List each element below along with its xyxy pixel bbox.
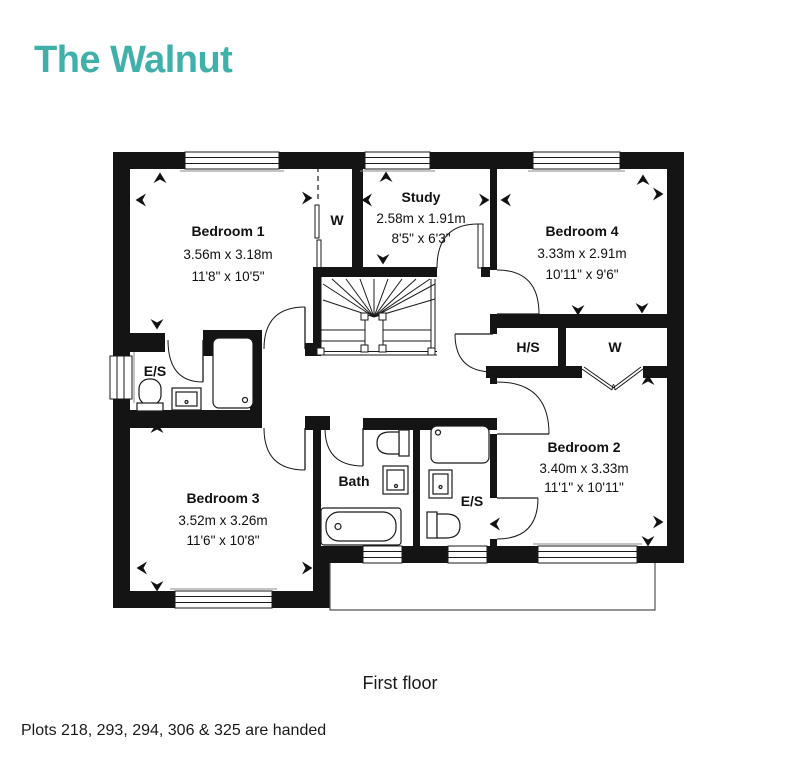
- sink-es1: [172, 388, 201, 410]
- dims-bedroom3-imperial: 11'6" x 10'8": [186, 533, 259, 548]
- dims-bedroom4-metric: 3.33m x 2.91m: [537, 246, 626, 261]
- dims-study-metric: 2.58m x 1.91m: [376, 211, 465, 226]
- sink-es2: [429, 470, 452, 498]
- dims-bedroom2-imperial: 11'1" x 10'11": [544, 480, 624, 495]
- door-es2: [497, 498, 538, 539]
- toilet-es1: [137, 379, 163, 411]
- label-bedroom3: Bedroom 3: [186, 490, 259, 506]
- dims-bedroom1-metric: 3.56m x 3.18m: [183, 247, 272, 262]
- door-bedroom2: [497, 382, 549, 434]
- label-es1: E/S: [144, 363, 167, 379]
- dims-bedroom4-imperial: 10'11" x 9'6": [545, 267, 618, 282]
- window-study: [360, 152, 435, 171]
- dims-study-imperial: 8'5" x 6'3": [391, 231, 450, 246]
- ground-floor-outline: [330, 563, 655, 610]
- dims-bedroom2-metric: 3.40m x 3.33m: [539, 461, 628, 476]
- stairs: [317, 277, 437, 355]
- sink-bath: [383, 466, 408, 494]
- label-bedroom1: Bedroom 1: [191, 223, 264, 239]
- window-bedroom3: [170, 589, 277, 608]
- door-bedroom3: [264, 428, 305, 470]
- door-bedroom1: [264, 307, 305, 349]
- label-bedroom2: Bedroom 2: [547, 439, 620, 455]
- floorplan-drawing: The Walnut Bedroom 1 3.56m x 3.18m 11'8"…: [0, 0, 800, 764]
- shower-es2: [431, 426, 489, 463]
- window-es1: [110, 352, 134, 403]
- window-bedroom2: [533, 544, 642, 563]
- door-es1: [168, 340, 203, 382]
- window-bedroom1: [180, 152, 284, 171]
- dims-bedroom3-metric: 3.52m x 3.26m: [178, 513, 267, 528]
- floor-caption: First floor: [362, 673, 437, 693]
- label-w1: W: [330, 212, 344, 228]
- toilet-es2: [427, 512, 460, 538]
- door-bifold-w2: [582, 367, 643, 390]
- handed-plots-note: Plots 218, 293, 294, 306 & 325 are hande…: [21, 722, 326, 739]
- wardrobe1-front: [315, 167, 321, 270]
- label-es2: E/S: [461, 493, 484, 509]
- toilet-bath: [377, 430, 409, 456]
- shower-es1: [213, 338, 253, 408]
- window-es2: [448, 546, 487, 563]
- label-w2: W: [608, 339, 622, 355]
- label-bedroom4: Bedroom 4: [545, 223, 618, 239]
- dims-bedroom1-imperial: 11'8" x 10'5": [191, 269, 264, 284]
- door-bedroom4: [497, 270, 539, 314]
- label-study: Study: [402, 189, 441, 205]
- window-bedroom4: [528, 152, 625, 171]
- page-title: The Walnut: [34, 39, 233, 81]
- bathtub: [321, 508, 401, 545]
- door-bath: [325, 428, 363, 466]
- window-bath: [363, 546, 402, 563]
- label-hs: H/S: [516, 339, 539, 355]
- floorplan-page: The Walnut Bedroom 1 3.56m x 3.18m 11'8"…: [0, 0, 800, 764]
- label-bath: Bath: [338, 473, 369, 489]
